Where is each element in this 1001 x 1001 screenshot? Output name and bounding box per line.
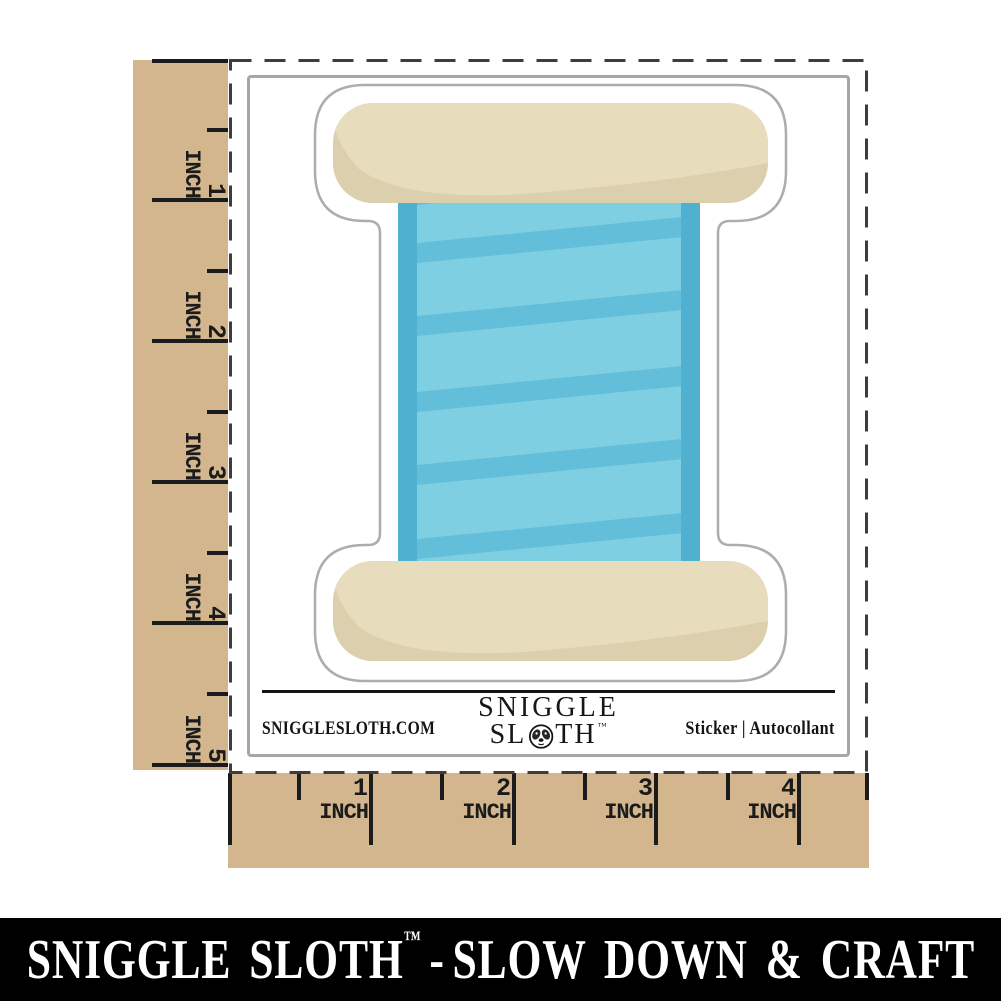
ruler-number: 2	[441, 776, 511, 801]
banner-brand: SNIGGLE SLOTH	[26, 929, 403, 991]
ruler-tick	[152, 339, 228, 343]
ruler-tick	[797, 773, 801, 845]
spool-top-cap	[333, 103, 768, 203]
ruler-tick	[152, 198, 228, 202]
ruler-unit: INCH	[441, 801, 511, 825]
sniggle-sloth-logo: SNIGGLE SL TH ™	[478, 694, 619, 750]
sloth-face-icon	[527, 723, 554, 750]
ruler-unit: INCH	[179, 431, 203, 480]
banner-separator: -	[429, 929, 444, 991]
ruler-tick	[369, 773, 373, 845]
ruler-number: 2	[203, 324, 228, 339]
thread-spool-sticker	[313, 83, 788, 683]
logo-word-sloth: SL TH ™	[478, 720, 619, 750]
footer-banner-text: SNIGGLE SLOTH™-SLOW DOWN & CRAFT	[26, 928, 974, 992]
left-ruler-label-2: 2 INCH	[172, 249, 228, 339]
logo-text: TH	[555, 720, 596, 750]
product-mockup: 1 INCH 2 INCH 3 INCH 4 INCH 5 INCH	[0, 0, 1001, 1001]
ruler-tick	[152, 621, 228, 625]
banner-tagline: SLOW DOWN & CRAFT	[452, 929, 975, 991]
ruler-number: 1	[203, 183, 228, 198]
ruler-tick	[865, 773, 869, 800]
ruler-number: 3	[203, 465, 228, 480]
bottom-ruler-label-2: 2 INCH	[441, 776, 511, 825]
bottom-inch-ruler: 1 INCH 2 INCH 3 INCH 4 INCH	[228, 773, 869, 868]
left-ruler-label-1: 1 INCH	[172, 108, 228, 198]
ruler-number: 5	[203, 748, 228, 763]
thread-body	[398, 179, 700, 605]
product-type-label: Sticker | Autocollant	[686, 718, 835, 740]
ruler-unit: INCH	[298, 801, 368, 825]
ruler-tick	[654, 773, 658, 845]
trademark-symbol: ™	[403, 926, 421, 951]
ruler-number: 1	[298, 776, 368, 801]
sticker-card: SNIGGLESLOTH.COM SNIGGLE SL TH ™ Sticker…	[247, 75, 850, 757]
spool-bottom-cap	[333, 561, 768, 661]
ruler-unit: INCH	[726, 801, 796, 825]
ruler-number: 4	[726, 776, 796, 801]
ruler-unit: INCH	[179, 149, 203, 198]
ruler-number: 3	[583, 776, 653, 801]
ruler-unit: INCH	[179, 714, 203, 763]
left-ruler-label-4: 4 INCH	[172, 531, 228, 621]
ruler-unit: INCH	[179, 572, 203, 621]
ruler-unit: INCH	[179, 290, 203, 339]
footer-banner: SNIGGLE SLOTH™-SLOW DOWN & CRAFT	[0, 918, 1001, 1001]
ruler-number: 4	[203, 606, 228, 621]
left-inch-ruler: 1 INCH 2 INCH 3 INCH 4 INCH 5 INCH	[133, 60, 228, 770]
ruler-tick	[512, 773, 516, 845]
bottom-ruler-label-1: 1 INCH	[298, 776, 368, 825]
ruler-unit: INCH	[583, 801, 653, 825]
ruler-tick	[228, 773, 232, 845]
bottom-ruler-label-4: 4 INCH	[726, 776, 796, 825]
logo-text: SL	[490, 720, 527, 750]
ruler-tick	[152, 763, 228, 767]
ruler-tick	[152, 480, 228, 484]
left-ruler-label-5: 5 INCH	[172, 673, 228, 763]
left-ruler-label-3: 3 INCH	[172, 390, 228, 480]
bottom-ruler-label-3: 3 INCH	[583, 776, 653, 825]
website-url: SNIGGLESLOTH.COM	[262, 718, 435, 740]
ruler-tick	[152, 59, 228, 63]
trademark-symbol: ™	[598, 711, 609, 741]
